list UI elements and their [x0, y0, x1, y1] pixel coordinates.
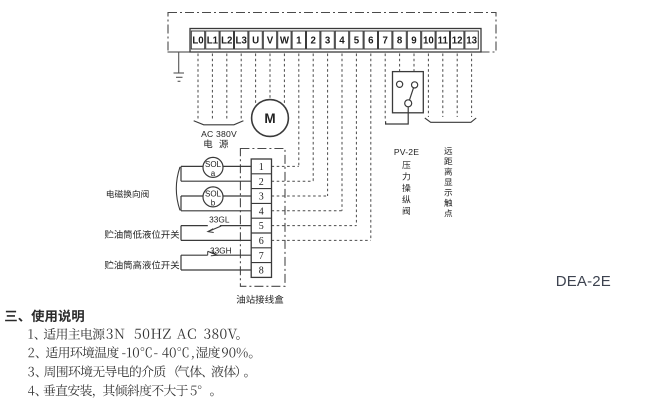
svg-text:10: 10 — [423, 36, 434, 47]
svg-text:V: V — [267, 36, 274, 47]
svg-text:5: 5 — [354, 36, 360, 47]
svg-text:M: M — [264, 111, 275, 126]
svg-text:2: 2 — [259, 177, 264, 188]
svg-text:11: 11 — [438, 36, 449, 47]
svg-text:L0: L0 — [192, 36, 203, 47]
svg-text:L1: L1 — [207, 36, 219, 47]
svg-text:2: 2 — [311, 36, 316, 47]
svg-text:8: 8 — [397, 36, 403, 47]
svg-text:4: 4 — [339, 36, 345, 47]
svg-text:9: 9 — [411, 36, 417, 47]
svg-text:6: 6 — [259, 236, 264, 247]
svg-text:a: a — [211, 169, 216, 178]
svg-text:3: 3 — [325, 36, 331, 47]
svg-text:8: 8 — [259, 266, 264, 277]
svg-text:13: 13 — [466, 36, 477, 47]
svg-text:33GL: 33GL — [209, 214, 230, 224]
svg-text:6: 6 — [368, 36, 374, 47]
svg-text:U: U — [252, 36, 259, 47]
svg-text:7: 7 — [259, 251, 264, 262]
svg-text:4: 4 — [259, 206, 264, 217]
svg-text:PV-2E: PV-2E — [394, 147, 419, 157]
svg-text:L3: L3 — [236, 36, 248, 47]
svg-text:DEA-2E: DEA-2E — [556, 273, 611, 290]
svg-text:L2: L2 — [221, 36, 232, 47]
svg-text:5: 5 — [259, 221, 264, 232]
svg-text:AC 380V: AC 380V — [201, 129, 237, 139]
svg-text:b: b — [211, 198, 216, 207]
svg-text:W: W — [280, 36, 290, 47]
svg-text:1: 1 — [296, 36, 302, 47]
svg-text:7: 7 — [383, 36, 388, 47]
svg-text:1: 1 — [259, 162, 264, 173]
svg-text:12: 12 — [452, 36, 463, 47]
svg-text:33GH: 33GH — [210, 246, 232, 256]
svg-text:3: 3 — [259, 192, 264, 203]
